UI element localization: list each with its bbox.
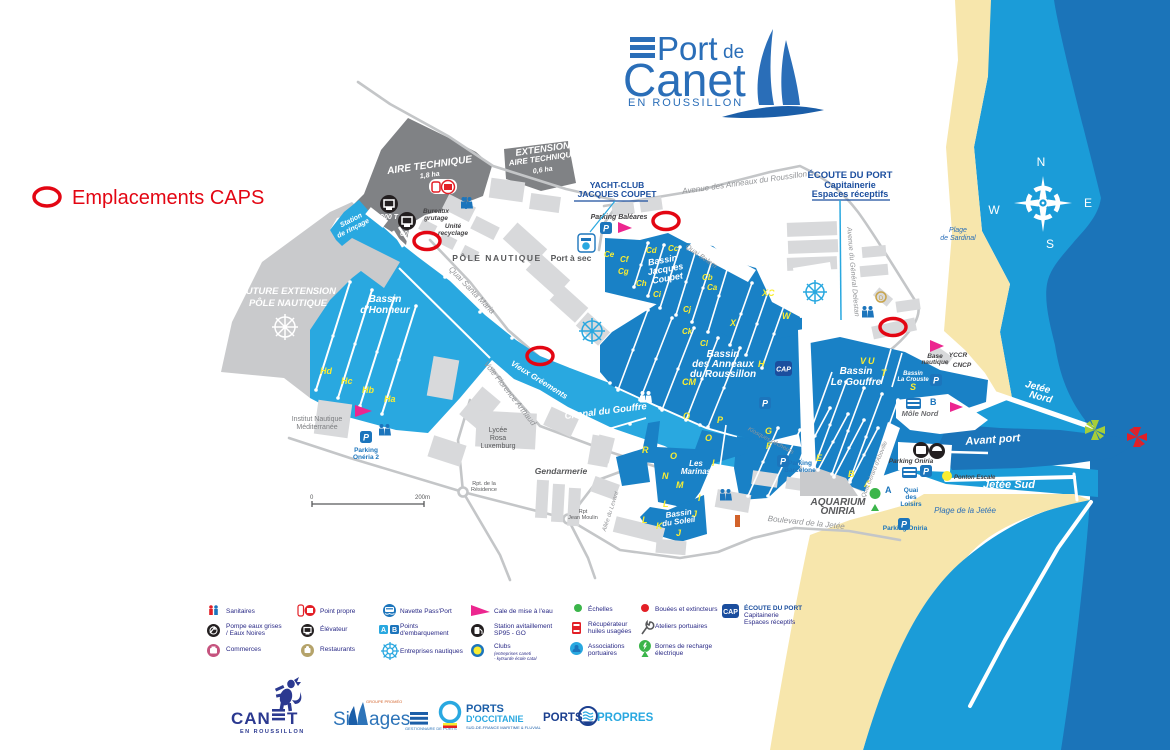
svg-text:d'embarquement: d'embarquement xyxy=(400,630,449,637)
svg-text:Marinas: Marinas xyxy=(681,467,712,476)
svg-text:B: B xyxy=(392,627,397,634)
svg-text:du Roussillon: du Roussillon xyxy=(690,369,756,380)
svg-text:N: N xyxy=(1037,155,1046,169)
svg-text:Hb: Hb xyxy=(362,385,374,395)
svg-text:SP95 - GO: SP95 - GO xyxy=(494,630,526,637)
svg-text:Port à sec: Port à sec xyxy=(551,253,592,263)
svg-text:P: P xyxy=(901,520,908,530)
svg-text:EN ROUSSILLON: EN ROUSSILLON xyxy=(628,97,743,109)
svg-text:U: U xyxy=(868,356,875,366)
svg-text:Parking: Parking xyxy=(354,447,378,454)
svg-text:Espaces réceptifs: Espaces réceptifs xyxy=(744,619,796,626)
svg-text:P: P xyxy=(923,467,930,477)
svg-text:Si: Si xyxy=(333,709,350,730)
svg-text:E: E xyxy=(816,453,823,463)
svg-text:P: P xyxy=(363,433,370,443)
svg-text:Bureaux: Bureaux xyxy=(423,208,449,215)
svg-text:Bouées et extincteurs: Bouées et extincteurs xyxy=(655,606,718,613)
svg-text:Ateliers portuaires: Ateliers portuaires xyxy=(655,623,708,630)
svg-text:Le Gouffre: Le Gouffre xyxy=(831,377,882,388)
svg-text:Barcelone: Barcelone xyxy=(784,467,816,474)
svg-text:ÉCOUTE DU PORT: ÉCOUTE DU PORT xyxy=(744,603,802,612)
svg-text:Échelles: Échelles xyxy=(588,604,613,613)
svg-text:Unité: Unité xyxy=(445,223,462,230)
svg-text:Quai: Quai xyxy=(904,487,919,494)
svg-text:ONIRIA: ONIRIA xyxy=(821,506,856,517)
svg-text:Onéria 2: Onéria 2 xyxy=(353,454,379,461)
svg-text:Capitainerie: Capitainerie xyxy=(744,612,779,619)
svg-text:CNCP: CNCP xyxy=(953,362,972,369)
svg-text:EN ROUSSILLON: EN ROUSSILLON xyxy=(240,729,305,735)
svg-text:V: V xyxy=(860,356,867,366)
svg-text:Espaces réceptifs: Espaces réceptifs xyxy=(812,189,889,199)
svg-text:Clubs: Clubs xyxy=(494,643,511,650)
svg-text:Bornes de recharge: Bornes de recharge xyxy=(655,643,712,650)
svg-text:O: O xyxy=(670,451,677,461)
svg-text:Station avitaillement: Station avitaillement xyxy=(494,623,552,630)
svg-text:T: T xyxy=(287,709,298,728)
svg-text:Jean Moulin: Jean Moulin xyxy=(568,515,598,521)
svg-text:S: S xyxy=(1046,237,1054,251)
svg-text:Pompe eaux grises: Pompe eaux grises xyxy=(226,623,282,630)
svg-text:Hc: Hc xyxy=(341,376,353,386)
svg-text:E: E xyxy=(1084,196,1092,210)
svg-text:W: W xyxy=(988,203,1000,217)
svg-text:S: S xyxy=(910,382,916,392)
svg-text:Plage de la Jetée: Plage de la Jetée xyxy=(934,506,996,515)
svg-text:PÔLE NAUTIQUE: PÔLE NAUTIQUE xyxy=(249,297,328,309)
svg-text:Loisirs: Loisirs xyxy=(900,501,922,508)
svg-text:- kytsurde école catal: - kytsurde école catal xyxy=(494,656,538,661)
svg-text:O: O xyxy=(705,433,712,443)
svg-text:recyclage: recyclage xyxy=(438,230,468,237)
svg-text:Cd: Cd xyxy=(646,246,658,255)
svg-text:PÔLE NAUTIQUE: PÔLE NAUTIQUE xyxy=(452,252,541,263)
svg-text:Lycée: Lycée xyxy=(489,427,508,434)
svg-text:Ponton Escale: Ponton Escale xyxy=(954,475,996,481)
svg-text:Bassin: Bassin xyxy=(369,294,402,305)
svg-text:Navette Pass'Port: Navette Pass'Port xyxy=(400,608,452,615)
svg-text:CAP: CAP xyxy=(723,609,738,616)
svg-text:Récupérateur: Récupérateur xyxy=(588,621,628,628)
svg-text:YCCR: YCCR xyxy=(949,352,968,359)
svg-text:Parking Oniria: Parking Oniria xyxy=(889,458,934,465)
svg-text:Associations: Associations xyxy=(588,643,625,650)
svg-text:Ha: Ha xyxy=(384,394,396,404)
svg-text:Gendarmerie: Gendarmerie xyxy=(535,466,588,476)
svg-text:Entreprises nautiques: Entreprises nautiques xyxy=(400,648,464,655)
svg-text:Sanitaires: Sanitaires xyxy=(226,608,256,615)
svg-text:SUD-DE-FRANCE MARITIME & FLUVI: SUD-DE-FRANCE MARITIME & FLUVIAL xyxy=(466,725,542,730)
svg-text:Institut Nautique: Institut Nautique xyxy=(292,416,343,423)
svg-text:D'OCCITANIE: D'OCCITANIE xyxy=(466,714,523,724)
svg-text:Points: Points xyxy=(400,623,419,630)
svg-text:A: A xyxy=(885,485,892,495)
svg-text:D: D xyxy=(879,296,884,302)
svg-text:A: A xyxy=(381,627,386,634)
svg-text:Emplacements CAPS: Emplacements CAPS xyxy=(72,187,264,209)
svg-text:Cj: Cj xyxy=(683,305,692,314)
svg-text:GROUPE PROMÉO: GROUPE PROMÉO xyxy=(366,699,402,704)
svg-text:P: P xyxy=(762,399,769,409)
svg-text:Cc: Cc xyxy=(668,244,679,253)
svg-text:Point propre: Point propre xyxy=(320,608,356,615)
svg-text:Bassin: Bassin xyxy=(840,366,873,377)
svg-text:Hd: Hd xyxy=(320,366,332,376)
svg-text:JACQUES COUPET: JACQUES COUPET xyxy=(578,189,658,199)
svg-text:PROPRES: PROPRES xyxy=(597,712,654,724)
svg-text:FUTURE EXTENSION: FUTURE EXTENSION xyxy=(240,286,337,297)
svg-text:grutage: grutage xyxy=(423,215,448,222)
svg-text:L: L xyxy=(642,515,648,525)
svg-text:Résidence: Résidence xyxy=(471,487,497,493)
svg-text:CAP: CAP xyxy=(776,367,791,374)
svg-text:Rosa: Rosa xyxy=(490,435,506,442)
svg-text:La Crouste: La Crouste xyxy=(897,377,929,383)
svg-text:/ Eaux Noires: / Eaux Noires xyxy=(226,630,266,637)
svg-text:P: P xyxy=(780,457,787,467)
svg-text:B: B xyxy=(848,469,855,479)
svg-text:des: des xyxy=(905,494,917,501)
svg-text:P: P xyxy=(933,376,940,386)
svg-text:Méditerranée: Méditerranée xyxy=(296,424,337,431)
svg-text:Restaurants: Restaurants xyxy=(320,646,356,653)
svg-text:200m: 200m xyxy=(415,495,430,501)
svg-text:CAN: CAN xyxy=(231,709,271,728)
svg-text:L: L xyxy=(663,499,669,509)
svg-text:de Sardinal: de Sardinal xyxy=(940,235,976,242)
svg-text:Cb: Cb xyxy=(702,273,713,282)
svg-text:Parking: Parking xyxy=(788,460,812,467)
svg-text:Commerces: Commerces xyxy=(226,646,262,653)
svg-text:huiles usagées: huiles usagées xyxy=(588,628,632,635)
svg-text:Ce: Ce xyxy=(604,250,615,259)
svg-text:Ch: Ch xyxy=(636,279,647,288)
svg-text:nautique: nautique xyxy=(921,359,948,366)
svg-text:M: M xyxy=(676,480,684,490)
svg-text:portuaires: portuaires xyxy=(588,650,618,657)
svg-text:Élévateur: Élévateur xyxy=(320,624,348,633)
svg-text:P: P xyxy=(603,224,610,234)
svg-text:Plage: Plage xyxy=(949,227,967,234)
svg-text:X: X xyxy=(729,318,737,328)
svg-text:Môle Nord: Môle Nord xyxy=(902,409,939,418)
svg-text:PORTS: PORTS xyxy=(543,712,583,724)
svg-text:Luxemburg: Luxemburg xyxy=(480,443,515,450)
svg-text:Cf: Cf xyxy=(620,255,630,264)
svg-text:Cg: Cg xyxy=(618,267,629,276)
svg-text:électrique: électrique xyxy=(655,650,684,657)
svg-text:R: R xyxy=(642,445,649,455)
svg-text:Cale de mise à l'eau: Cale de mise à l'eau xyxy=(494,608,553,615)
svg-text:Cl: Cl xyxy=(700,339,709,348)
svg-text:Ci: Ci xyxy=(653,290,662,299)
svg-text:P: P xyxy=(717,415,724,425)
svg-text:B: B xyxy=(930,397,937,407)
svg-text:N: N xyxy=(662,471,669,481)
svg-text:Ca: Ca xyxy=(707,283,718,292)
svg-text:d'Honneur: d'Honneur xyxy=(360,305,411,316)
